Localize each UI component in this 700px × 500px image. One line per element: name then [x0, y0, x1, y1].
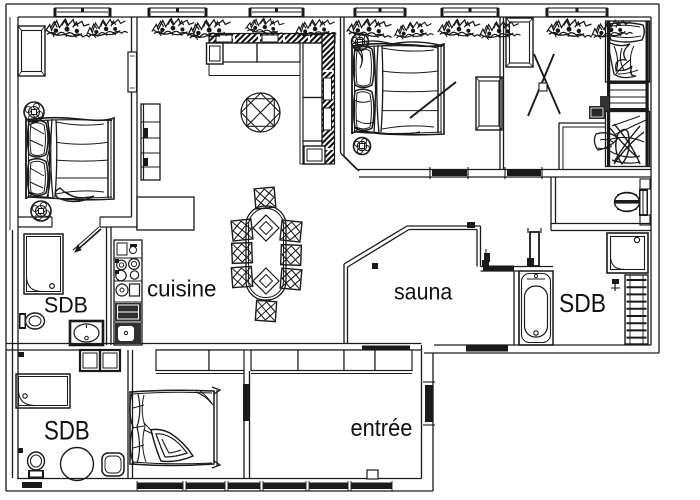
svg-text:cuisine: cuisine	[147, 275, 216, 302]
svg-text:SDB: SDB	[44, 292, 88, 318]
svg-text:entrée: entrée	[351, 414, 413, 441]
svg-text:SDB: SDB	[559, 290, 606, 319]
svg-text:SDB: SDB	[44, 417, 90, 446]
svg-text:sauna: sauna	[394, 279, 453, 305]
